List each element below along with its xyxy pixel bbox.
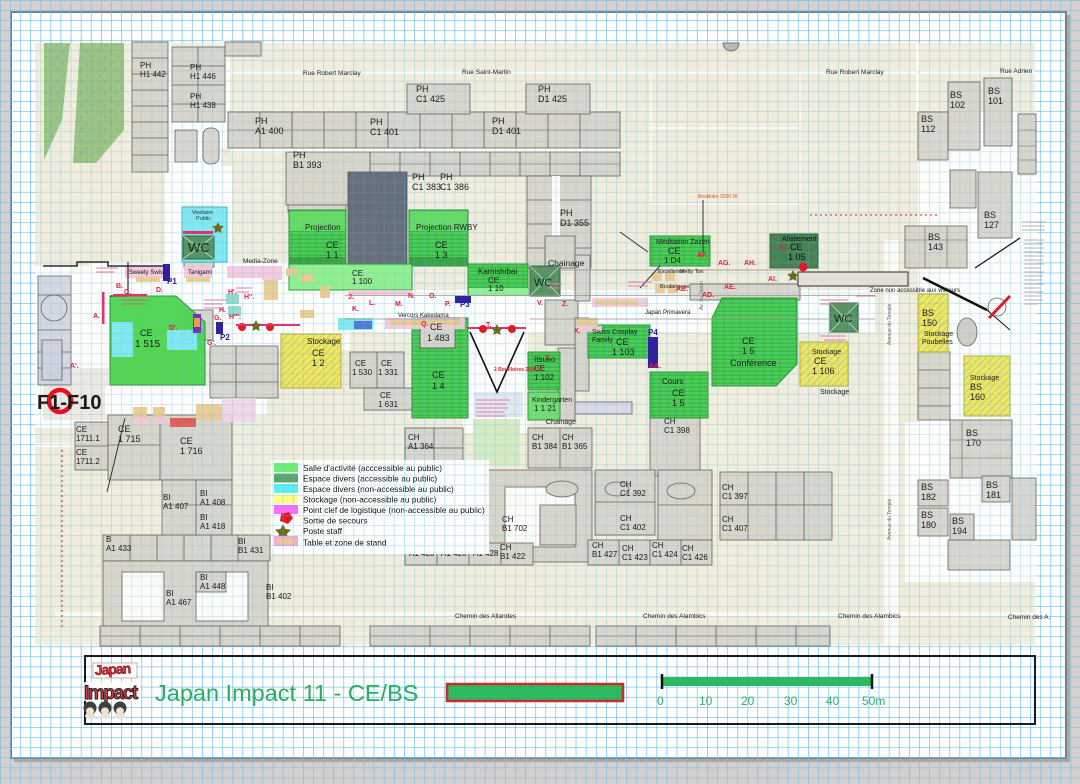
- svg-text:B1 393: B1 393: [293, 160, 322, 170]
- svg-text:1 2: 1 2: [312, 358, 325, 368]
- svg-text:V.: V.: [537, 300, 543, 307]
- svg-text:1 05: 1 05: [788, 252, 806, 262]
- svg-text:CE: CE: [435, 240, 448, 250]
- svg-text:B1 422: B1 422: [500, 552, 526, 561]
- svg-text:1 D4: 1 D4: [664, 256, 681, 265]
- svg-text:Cours: Cours: [662, 377, 683, 386]
- svg-text:Chemin des A.: Chemin des A.: [1008, 614, 1050, 621]
- svg-text:Stockage: Stockage: [820, 389, 849, 396]
- svg-text:127: 127: [984, 220, 999, 230]
- svg-text:PH: PH: [293, 150, 306, 160]
- svg-text:A'.: A'.: [70, 363, 79, 370]
- svg-text:AB.: AB.: [676, 286, 688, 293]
- svg-text:CH: CH: [664, 417, 676, 426]
- svg-text:PH: PH: [416, 84, 429, 94]
- svg-text:0: 0: [657, 694, 664, 708]
- svg-text:A1 418: A1 418: [200, 522, 226, 531]
- svg-text:Z.: Z.: [562, 301, 568, 308]
- svg-text:Poubelles: Poubelles: [922, 339, 953, 346]
- svg-text:CH: CH: [532, 433, 544, 442]
- svg-text:BI: BI: [163, 493, 171, 502]
- svg-text:1 103: 1 103: [612, 347, 635, 357]
- svg-text:C1 426: C1 426: [682, 553, 708, 562]
- svg-text:Avenue du Temple: Avenue du Temple: [887, 304, 893, 345]
- svg-text:PH: PH: [412, 172, 425, 182]
- svg-text:Chemin des Alambics: Chemin des Alambics: [643, 613, 706, 620]
- svg-text:Chainage: Chainage: [548, 258, 585, 268]
- svg-text:BS: BS: [988, 86, 1000, 96]
- svg-text:PH: PH: [370, 117, 383, 127]
- svg-text:Chemin des Allandes: Chemin des Allandes: [455, 613, 517, 620]
- svg-text:Japan Primavera: Japan Primavera: [645, 310, 691, 316]
- svg-text:Media-Zone: Media-Zone: [243, 258, 278, 265]
- svg-text:CH: CH: [682, 544, 694, 553]
- svg-text:BS: BS: [966, 428, 978, 438]
- svg-text:1 4: 1 4: [432, 381, 445, 391]
- svg-text:1 5: 1 5: [672, 398, 685, 408]
- svg-text:CE: CE: [76, 425, 87, 434]
- svg-text:C1 383: C1 383: [412, 182, 441, 192]
- svg-text:F1-F10: F1-F10: [37, 392, 101, 414]
- svg-text:101: 101: [988, 96, 1003, 106]
- svg-text:D1 401: D1 401: [492, 126, 521, 136]
- svg-text:D'.: D'.: [169, 325, 178, 332]
- svg-text:CH: CH: [592, 541, 604, 550]
- svg-text:Stockage: Stockage: [307, 337, 341, 346]
- svg-text:160: 160: [970, 392, 985, 402]
- svg-text:PH: PH: [560, 208, 573, 218]
- svg-text:1 515: 1 515: [135, 339, 160, 350]
- svg-text:Stockage: Stockage: [812, 349, 841, 356]
- svg-text:Stockage: Stockage: [924, 331, 953, 338]
- svg-text:Conférence: Conférence: [730, 358, 777, 368]
- svg-text:10: 10: [699, 694, 713, 708]
- svg-text:G.: G.: [214, 315, 221, 322]
- svg-text:Sweety Swiss: Sweety Swiss: [129, 270, 166, 276]
- svg-text:B1 384: B1 384: [532, 442, 558, 451]
- svg-text:B1 702: B1 702: [502, 524, 528, 533]
- svg-text:H'.: H'.: [228, 289, 237, 296]
- svg-text:WC: WC: [834, 313, 852, 325]
- svg-text:BS: BS: [921, 114, 933, 124]
- svg-text:PH: PH: [255, 116, 268, 126]
- svg-text:M.: M.: [395, 301, 403, 308]
- svg-text:BS: BS: [921, 482, 933, 492]
- svg-text:BS: BS: [970, 382, 982, 392]
- svg-text:182: 182: [921, 492, 936, 502]
- svg-text:H1 438: H1 438: [190, 101, 216, 110]
- svg-text:CE: CE: [742, 336, 755, 346]
- svg-text:Japan: Japan: [94, 660, 131, 678]
- svg-text:P.: P.: [445, 301, 451, 308]
- svg-text:D1 425: D1 425: [538, 94, 567, 104]
- svg-text:1 331: 1 331: [378, 368, 399, 377]
- svg-text:X.: X.: [574, 328, 581, 335]
- svg-text:Rue Robert Marclay: Rue Robert Marclay: [826, 69, 885, 76]
- svg-text:O.: O.: [429, 293, 436, 300]
- svg-text:B.: B.: [116, 283, 123, 290]
- svg-text:40: 40: [826, 694, 840, 708]
- svg-text:B1 427: B1 427: [592, 550, 618, 559]
- svg-text:CE: CE: [355, 359, 366, 368]
- svg-text:181: 181: [986, 490, 1001, 500]
- svg-text:A1 364: A1 364: [408, 442, 434, 451]
- svg-text:Q.: Q.: [421, 321, 428, 328]
- svg-text:CE: CE: [76, 448, 87, 457]
- svg-text:50m: 50m: [862, 694, 885, 708]
- svg-text:A1 407: A1 407: [163, 502, 189, 511]
- svg-text:PH: PH: [190, 92, 201, 101]
- svg-text:AI.: AI.: [768, 276, 777, 283]
- svg-text:BS: BS: [984, 210, 996, 220]
- svg-text:G'.: G'.: [207, 340, 216, 347]
- svg-text:CH: CH: [408, 433, 420, 442]
- svg-text:C1 424: C1 424: [652, 550, 678, 559]
- svg-text:CH: CH: [652, 541, 664, 550]
- svg-text:A.: A.: [93, 313, 100, 320]
- svg-text:CH: CH: [500, 543, 512, 552]
- svg-text:BI: BI: [200, 489, 208, 498]
- svg-text:D.: D.: [156, 287, 163, 294]
- svg-text:2 Bouilloires 2000 W: 2 Bouilloires 2000 W: [494, 367, 543, 373]
- svg-text:C1 425: C1 425: [416, 94, 445, 104]
- svg-text:CE: CE: [312, 348, 325, 358]
- svg-text:Projection RWBY: Projection RWBY: [416, 223, 478, 232]
- svg-text:A1 408: A1 408: [200, 498, 226, 507]
- svg-text:C.: C.: [124, 289, 131, 296]
- svg-text:BS: BS: [921, 510, 933, 520]
- svg-text:AD.: AD.: [702, 292, 714, 299]
- svg-text:112: 112: [921, 124, 935, 134]
- svg-text:170: 170: [966, 438, 981, 448]
- svg-text:A1 400: A1 400: [255, 126, 284, 136]
- svg-text:BI: BI: [238, 537, 246, 546]
- svg-text:20: 20: [741, 694, 755, 708]
- svg-text:1 102: 1 102: [534, 373, 555, 382]
- svg-text:1 715: 1 715: [118, 434, 141, 444]
- svg-text:Family: Family: [592, 337, 613, 344]
- svg-text:BS: BS: [922, 308, 934, 318]
- svg-text:1 631: 1 631: [378, 400, 399, 409]
- svg-text:B1 431: B1 431: [238, 546, 264, 555]
- svg-text:C1 397: C1 397: [722, 492, 748, 501]
- svg-text:1 100: 1 100: [352, 277, 373, 286]
- svg-text:H1 442: H1 442: [140, 70, 166, 79]
- svg-text:Kindergarten: Kindergarten: [532, 397, 572, 404]
- svg-text:Tanigami: Tanigami: [188, 270, 212, 276]
- svg-text:Zone non accessible aux visite: Zone non accessible aux visiteurs: [870, 288, 960, 294]
- svg-text:A1 467: A1 467: [166, 598, 192, 607]
- svg-text:WC: WC: [188, 240, 210, 255]
- svg-text:PH: PH: [492, 116, 505, 126]
- svg-text:CE: CE: [668, 246, 681, 256]
- svg-text:CE: CE: [672, 388, 685, 398]
- svg-text:1 483: 1 483: [427, 333, 450, 343]
- svg-text:Chemin des Alambics: Chemin des Alambics: [838, 613, 901, 620]
- svg-text:AF.: AF.: [697, 252, 708, 259]
- svg-text:1 1: 1 1: [326, 250, 339, 260]
- svg-text:1 10: 1 10: [488, 284, 504, 293]
- svg-text:P4: P4: [648, 328, 658, 337]
- svg-text:Rue Saint-Martin: Rue Saint-Martin: [462, 69, 511, 76]
- svg-text:Rue Robert Marclay: Rue Robert Marclay: [303, 70, 362, 77]
- svg-text:CH: CH: [562, 433, 574, 442]
- svg-text:BS: BS: [950, 90, 962, 100]
- svg-text:C1 386: C1 386: [440, 182, 469, 192]
- svg-text:CE: CE: [380, 391, 391, 400]
- svg-text:K.: K.: [352, 306, 359, 313]
- svg-text:PH: PH: [440, 172, 453, 182]
- svg-text:Swiss Cosplay: Swiss Cosplay: [592, 329, 638, 336]
- svg-text:C1 423: C1 423: [622, 553, 648, 562]
- svg-text:D1 355: D1 355: [560, 218, 589, 228]
- svg-text:CE: CE: [180, 436, 193, 446]
- svg-text:150: 150: [922, 318, 937, 328]
- svg-text:143: 143: [928, 242, 943, 252]
- svg-text:CE: CE: [326, 240, 339, 250]
- svg-text:B1 402: B1 402: [266, 592, 292, 601]
- svg-text:PH: PH: [190, 63, 201, 72]
- svg-text:102: 102: [950, 100, 965, 110]
- svg-text:Avenue du Temple: Avenue du Temple: [887, 499, 893, 540]
- svg-text:CH: CH: [620, 480, 632, 489]
- svg-text:CE: CE: [616, 337, 629, 347]
- svg-text:1 716: 1 716: [180, 446, 203, 456]
- svg-text:BI: BI: [200, 573, 208, 582]
- svg-text:CH: CH: [620, 514, 632, 523]
- svg-text:J.: J.: [348, 294, 354, 301]
- svg-text:Impact: Impact: [84, 683, 139, 704]
- svg-text:1 5: 1 5: [742, 346, 755, 356]
- svg-text:BI: BI: [200, 513, 208, 522]
- svg-text:1 530: 1 530: [352, 368, 373, 377]
- svg-text:CH: CH: [722, 515, 734, 524]
- svg-text:B: B: [106, 535, 111, 544]
- svg-text:Chainage: Chainage: [546, 419, 576, 426]
- svg-text:Public: Public: [196, 216, 211, 222]
- svg-text:Projection: Projection: [305, 223, 341, 232]
- svg-text:C1 402: C1 402: [620, 523, 646, 532]
- svg-text:P2: P2: [220, 333, 230, 342]
- svg-text:CE: CE: [430, 322, 443, 332]
- svg-text:BS: BS: [928, 232, 940, 242]
- svg-text:C1 392: C1 392: [620, 489, 646, 498]
- svg-text:H'''.: H'''.: [229, 314, 241, 321]
- svg-text:Y.: Y.: [545, 355, 551, 362]
- svg-text:Vercors Kakedama: Vercors Kakedama: [398, 313, 449, 319]
- svg-text:194: 194: [952, 526, 967, 536]
- svg-text:C1 401: C1 401: [370, 127, 399, 137]
- svg-text:H1 446: H1 446: [190, 72, 216, 81]
- svg-text:1 1 21: 1 1 21: [534, 404, 557, 413]
- svg-text:CH: CH: [622, 544, 634, 553]
- svg-text:CE: CE: [118, 424, 131, 434]
- svg-text:A1 448: A1 448: [200, 582, 226, 591]
- svg-text:AJ.: AJ.: [778, 244, 789, 251]
- svg-text:AG.: AG.: [718, 260, 731, 267]
- svg-text:AE.: AE.: [724, 284, 736, 291]
- svg-text:L.: L.: [369, 300, 375, 307]
- svg-text:C1 407: C1 407: [722, 524, 748, 533]
- svg-text:AH.: AH.: [744, 260, 756, 267]
- svg-text:180: 180: [921, 520, 936, 530]
- svg-text:1711.2: 1711.2: [76, 457, 100, 466]
- svg-text:CE: CE: [432, 370, 445, 380]
- svg-text:Bouilloire 2000 W: Bouilloire 2000 W: [698, 194, 737, 200]
- svg-text:Japan Impact 11 - CE/BS: Japan Impact 11 - CE/BS: [155, 680, 418, 706]
- svg-text:Stockage: Stockage: [970, 375, 999, 382]
- svg-text:C1 398: C1 398: [664, 426, 690, 435]
- svg-text:Melty Ton: Melty Ton: [680, 269, 703, 275]
- svg-text:CE: CE: [140, 328, 153, 338]
- svg-text:PH: PH: [538, 84, 551, 94]
- svg-text:T.: T.: [486, 322, 492, 329]
- svg-text:AA.: AA.: [649, 363, 661, 370]
- svg-text:H''.: H''.: [244, 294, 254, 301]
- svg-text:CE: CE: [814, 356, 827, 366]
- svg-text:CE: CE: [790, 242, 803, 252]
- svg-text:WC: WC: [534, 277, 552, 289]
- svg-text:1 3: 1 3: [435, 250, 448, 260]
- svg-text:BI: BI: [166, 589, 174, 598]
- svg-text:CE: CE: [381, 359, 392, 368]
- svg-text:BS: BS: [952, 516, 964, 526]
- svg-text:BI: BI: [266, 583, 274, 592]
- svg-text:A1 433: A1 433: [106, 544, 132, 553]
- svg-text:B1 365: B1 365: [562, 442, 588, 451]
- svg-text:Rue Adrien: Rue Adrien: [1000, 68, 1033, 75]
- svg-text:BS: BS: [986, 480, 998, 490]
- svg-text:PH: PH: [140, 61, 151, 70]
- svg-text:CH: CH: [722, 483, 734, 492]
- svg-text:Méditation Zazen: Méditation Zazen: [656, 239, 710, 246]
- svg-text:1 106: 1 106: [812, 366, 835, 376]
- svg-text:N.: N.: [408, 293, 415, 300]
- svg-text:30: 30: [784, 694, 798, 708]
- svg-text:CH: CH: [502, 515, 514, 524]
- svg-text:Kamishibai: Kamishibai: [478, 267, 517, 276]
- svg-text:1711.1: 1711.1: [76, 434, 100, 443]
